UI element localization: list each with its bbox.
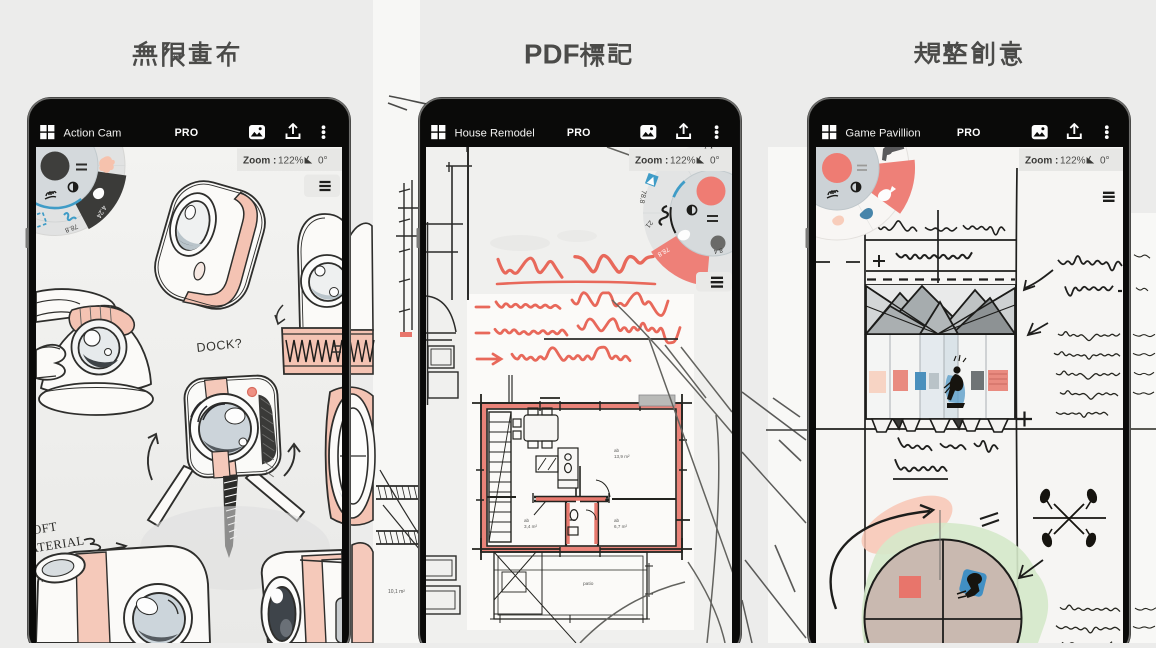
svg-text:6,7 m²: 6,7 m² [614,524,627,529]
svg-text:PRO: PRO [957,127,981,139]
svg-text:Game Pavillion: Game Pavillion [845,128,920,140]
svg-text:3,4 m²: 3,4 m² [524,524,537,529]
svg-text:13,9 m²: 13,9 m² [614,454,630,459]
svg-text:0°: 0° [710,155,720,166]
svg-text:Action Cam: Action Cam [64,128,122,140]
svg-text:Zoom :: Zoom : [1025,155,1058,166]
svg-text:122%: 122% [670,155,696,166]
svg-text:PRO: PRO [175,127,199,139]
svg-text:ab: ab [524,518,530,523]
svg-text:House Remodel: House Remodel [455,128,535,140]
svg-text:122%: 122% [1060,155,1086,166]
svg-text:10,1 m²: 10,1 m² [388,589,405,595]
svg-text:0°: 0° [1100,155,1110,166]
svg-text:122%: 122% [278,155,304,166]
svg-text:0°: 0° [318,155,328,166]
svg-text:Zoom :: Zoom : [243,155,276,166]
svg-text:PDF: PDF [524,39,580,70]
svg-text:ab: ab [614,448,620,453]
svg-text:PRO: PRO [567,127,591,139]
svg-text:patio: patio [583,581,594,587]
svg-text:Zoom :: Zoom : [635,155,668,166]
svg-text:ab: ab [614,518,620,523]
